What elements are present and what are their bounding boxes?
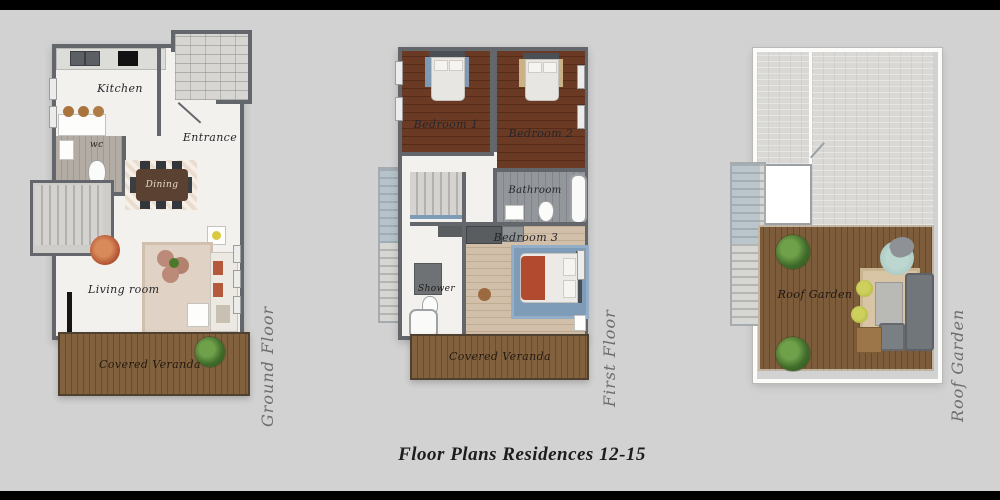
porch-wall-top (171, 30, 252, 34)
dining-chair (156, 201, 166, 209)
toilet (538, 201, 554, 222)
bedroom1-wall-bottom (402, 152, 494, 156)
side-table (856, 327, 882, 353)
room-label-wc: wc (90, 140, 104, 150)
room-label-bedroom2: Bedroom 2 (496, 127, 586, 140)
yellow-flower (212, 231, 221, 240)
pouf (162, 266, 179, 283)
plant (169, 258, 179, 268)
porch-wall-right (248, 30, 252, 104)
bar-stool (78, 106, 89, 117)
first-floor-plan: Bedroom 1 Bedroom 2 Bathroom (378, 45, 638, 400)
bed (525, 59, 559, 101)
roof-parapet-wall (809, 52, 812, 164)
room-label-veranda-first: Covered Veranda (430, 350, 570, 363)
side-label-roof-garden: Roof Garden (948, 290, 982, 440)
nightstand (574, 315, 586, 331)
bed-blanket (521, 256, 545, 300)
room-label-kitchen: Kitchen (85, 82, 155, 95)
garden-chair (856, 280, 873, 297)
window (233, 296, 241, 314)
sofa-cushion (213, 261, 223, 275)
plant (776, 235, 810, 269)
porch-wall-bottom (216, 100, 252, 104)
roof-deck: Roof Garden (758, 225, 934, 371)
room-label-bathroom: Bathroom (495, 185, 575, 196)
kitchen-wall (157, 48, 161, 136)
outdoor-sofa (905, 273, 934, 351)
pillow (528, 62, 542, 73)
kitchen-sink-basin-left (70, 51, 85, 66)
bathroom-sink (505, 205, 524, 220)
pillow (449, 60, 463, 71)
sofa (210, 252, 238, 332)
dining-table: Dining (136, 169, 188, 201)
pillow (543, 62, 557, 73)
glass-balustrade (732, 164, 760, 244)
room-label-entrance: Entrance (180, 131, 240, 144)
bed (431, 57, 465, 101)
window (577, 250, 585, 280)
pillow (563, 280, 576, 298)
sofa-throw (216, 305, 230, 323)
room-label-roof-garden: Roof Garden (770, 288, 860, 301)
window (49, 78, 57, 100)
shower-vanity (438, 226, 462, 237)
bed (520, 253, 578, 303)
ground-veranda: Covered Veranda (58, 332, 250, 396)
dining-chair (140, 201, 150, 209)
pillow (434, 60, 448, 71)
first-veranda: Covered Veranda (410, 334, 589, 380)
window (577, 65, 585, 89)
deck-table (875, 282, 903, 326)
room-label-bedroom1: Bedroom 1 (401, 118, 491, 131)
entrance-porch (171, 30, 252, 104)
coffee-table (187, 303, 209, 327)
roof-surface-left (757, 52, 809, 164)
window (233, 245, 241, 263)
bar-stool (63, 106, 74, 117)
roof-plan: Roof Garden Roof Garden (728, 45, 1000, 445)
pillow (563, 258, 576, 276)
dining-chair (140, 161, 150, 169)
side-label-first-floor: First Floor (600, 303, 630, 413)
dining-chair (172, 161, 182, 169)
dining-chair (156, 161, 166, 169)
room-label-bedroom3: Bedroom 3 (481, 231, 571, 244)
dining-chair (172, 201, 182, 209)
window (233, 270, 241, 288)
window (49, 106, 57, 128)
wc-sink (59, 140, 74, 160)
floor-plans-sheet: Kitchen Entrance wc Dining (0, 0, 1000, 500)
stool (478, 288, 491, 301)
room-label-shower: Shower (418, 284, 455, 294)
stair-bulkhead (762, 164, 812, 225)
stove (118, 51, 138, 66)
garden-chair (851, 306, 868, 323)
bar-stool (93, 106, 104, 117)
letterbox-bottom (0, 491, 1000, 500)
sofa-cushion (213, 283, 223, 297)
stair-treads (35, 185, 103, 245)
window (577, 105, 585, 129)
round-armchair (90, 235, 120, 265)
ground-floor-plan: Kitchen Entrance wc Dining (30, 30, 320, 430)
plant (776, 337, 810, 371)
outdoor-chaise (879, 323, 905, 351)
page-title: Floor Plans Residences 12-15 (0, 444, 1000, 466)
tv (67, 292, 72, 332)
kitchen-sink-basin-right (85, 51, 100, 66)
stair-glass-rail (410, 215, 462, 219)
interior-stairs (410, 172, 462, 218)
kitchen-island (58, 114, 106, 136)
porch-tiles (175, 34, 248, 100)
roof-surface-right (812, 52, 934, 225)
letterbox-top (0, 0, 1000, 10)
bathtub (570, 174, 587, 224)
plant (195, 337, 225, 367)
window (395, 61, 403, 85)
porch-wall-left (171, 30, 175, 52)
room-label-living-room: Living room (88, 283, 158, 296)
side-label-ground-floor: Ground Floor (258, 302, 288, 430)
window (395, 97, 403, 121)
